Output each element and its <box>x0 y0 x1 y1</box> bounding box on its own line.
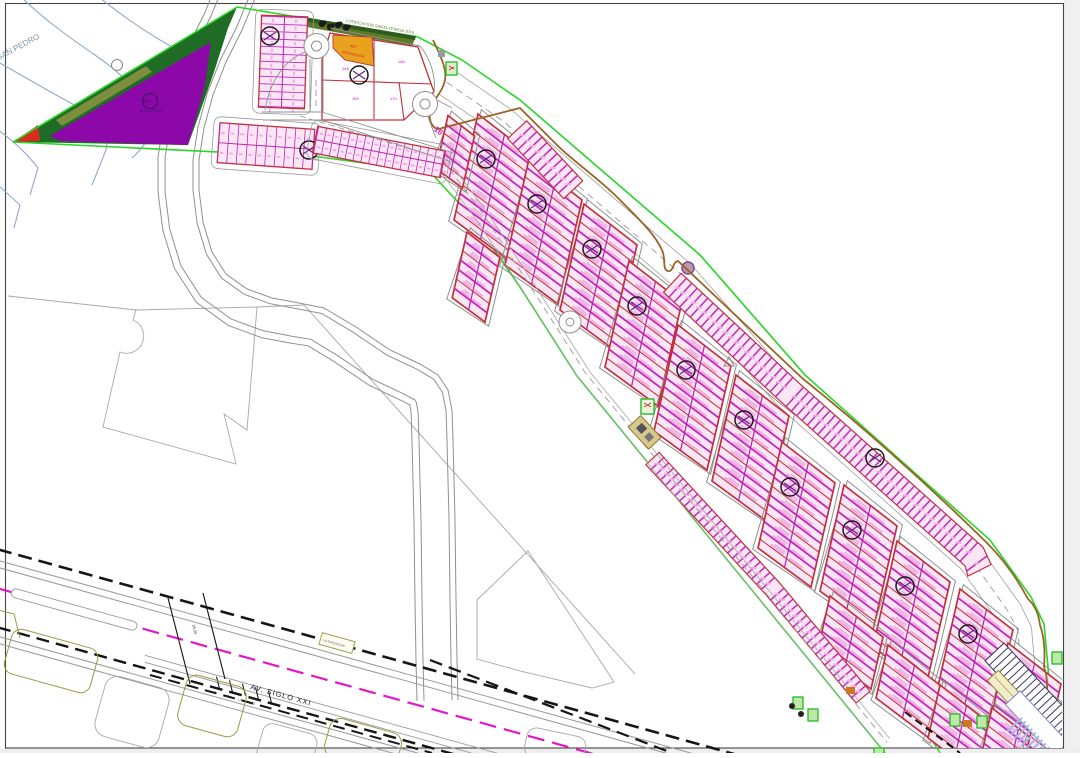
svg-text:1.5: 1.5 <box>212 691 217 695</box>
svg-text:168: 168 <box>342 66 349 71</box>
svg-text:1.5: 1.5 <box>225 694 230 698</box>
svg-text:1.5: 1.5 <box>251 701 256 705</box>
svg-text:169: 169 <box>352 96 359 101</box>
svg-text:1.5: 1.5 <box>264 705 269 709</box>
svg-text:1.5: 1.5 <box>238 698 243 702</box>
svg-text:166: 166 <box>398 59 405 64</box>
svg-text:467: 467 <box>143 99 152 105</box>
svg-text:AREA VERDE: AREA VERDE <box>140 109 163 113</box>
svg-text:170: 170 <box>390 96 397 101</box>
